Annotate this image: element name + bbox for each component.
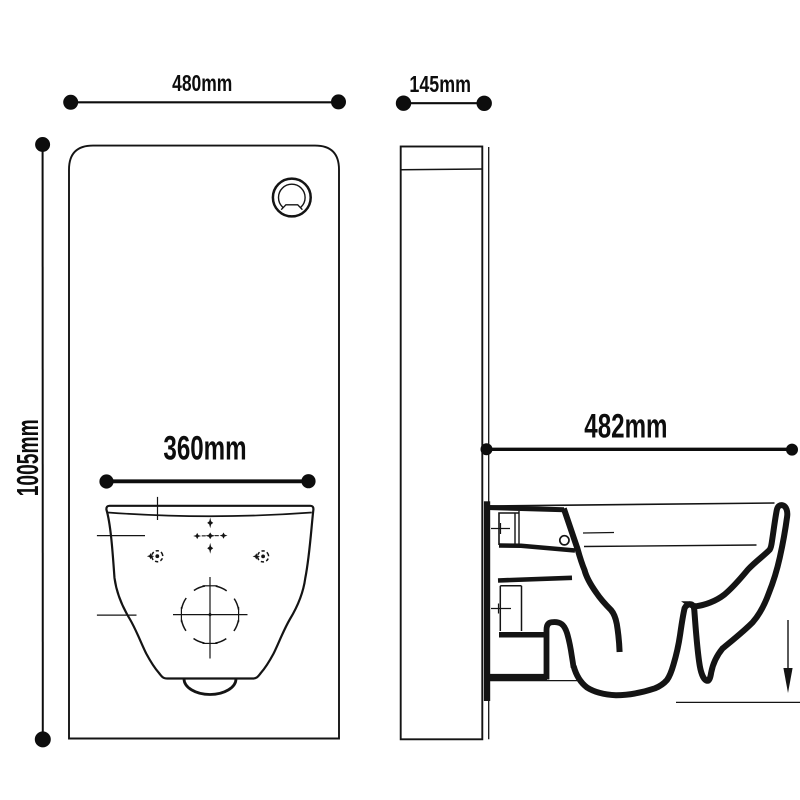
svg-text:145mm: 145mm [409,72,471,98]
svg-text:480mm: 480mm [172,72,232,97]
svg-text:482mm: 482mm [584,407,667,445]
svg-text:1005mm: 1005mm [11,419,45,496]
svg-text:360mm: 360mm [163,429,246,467]
